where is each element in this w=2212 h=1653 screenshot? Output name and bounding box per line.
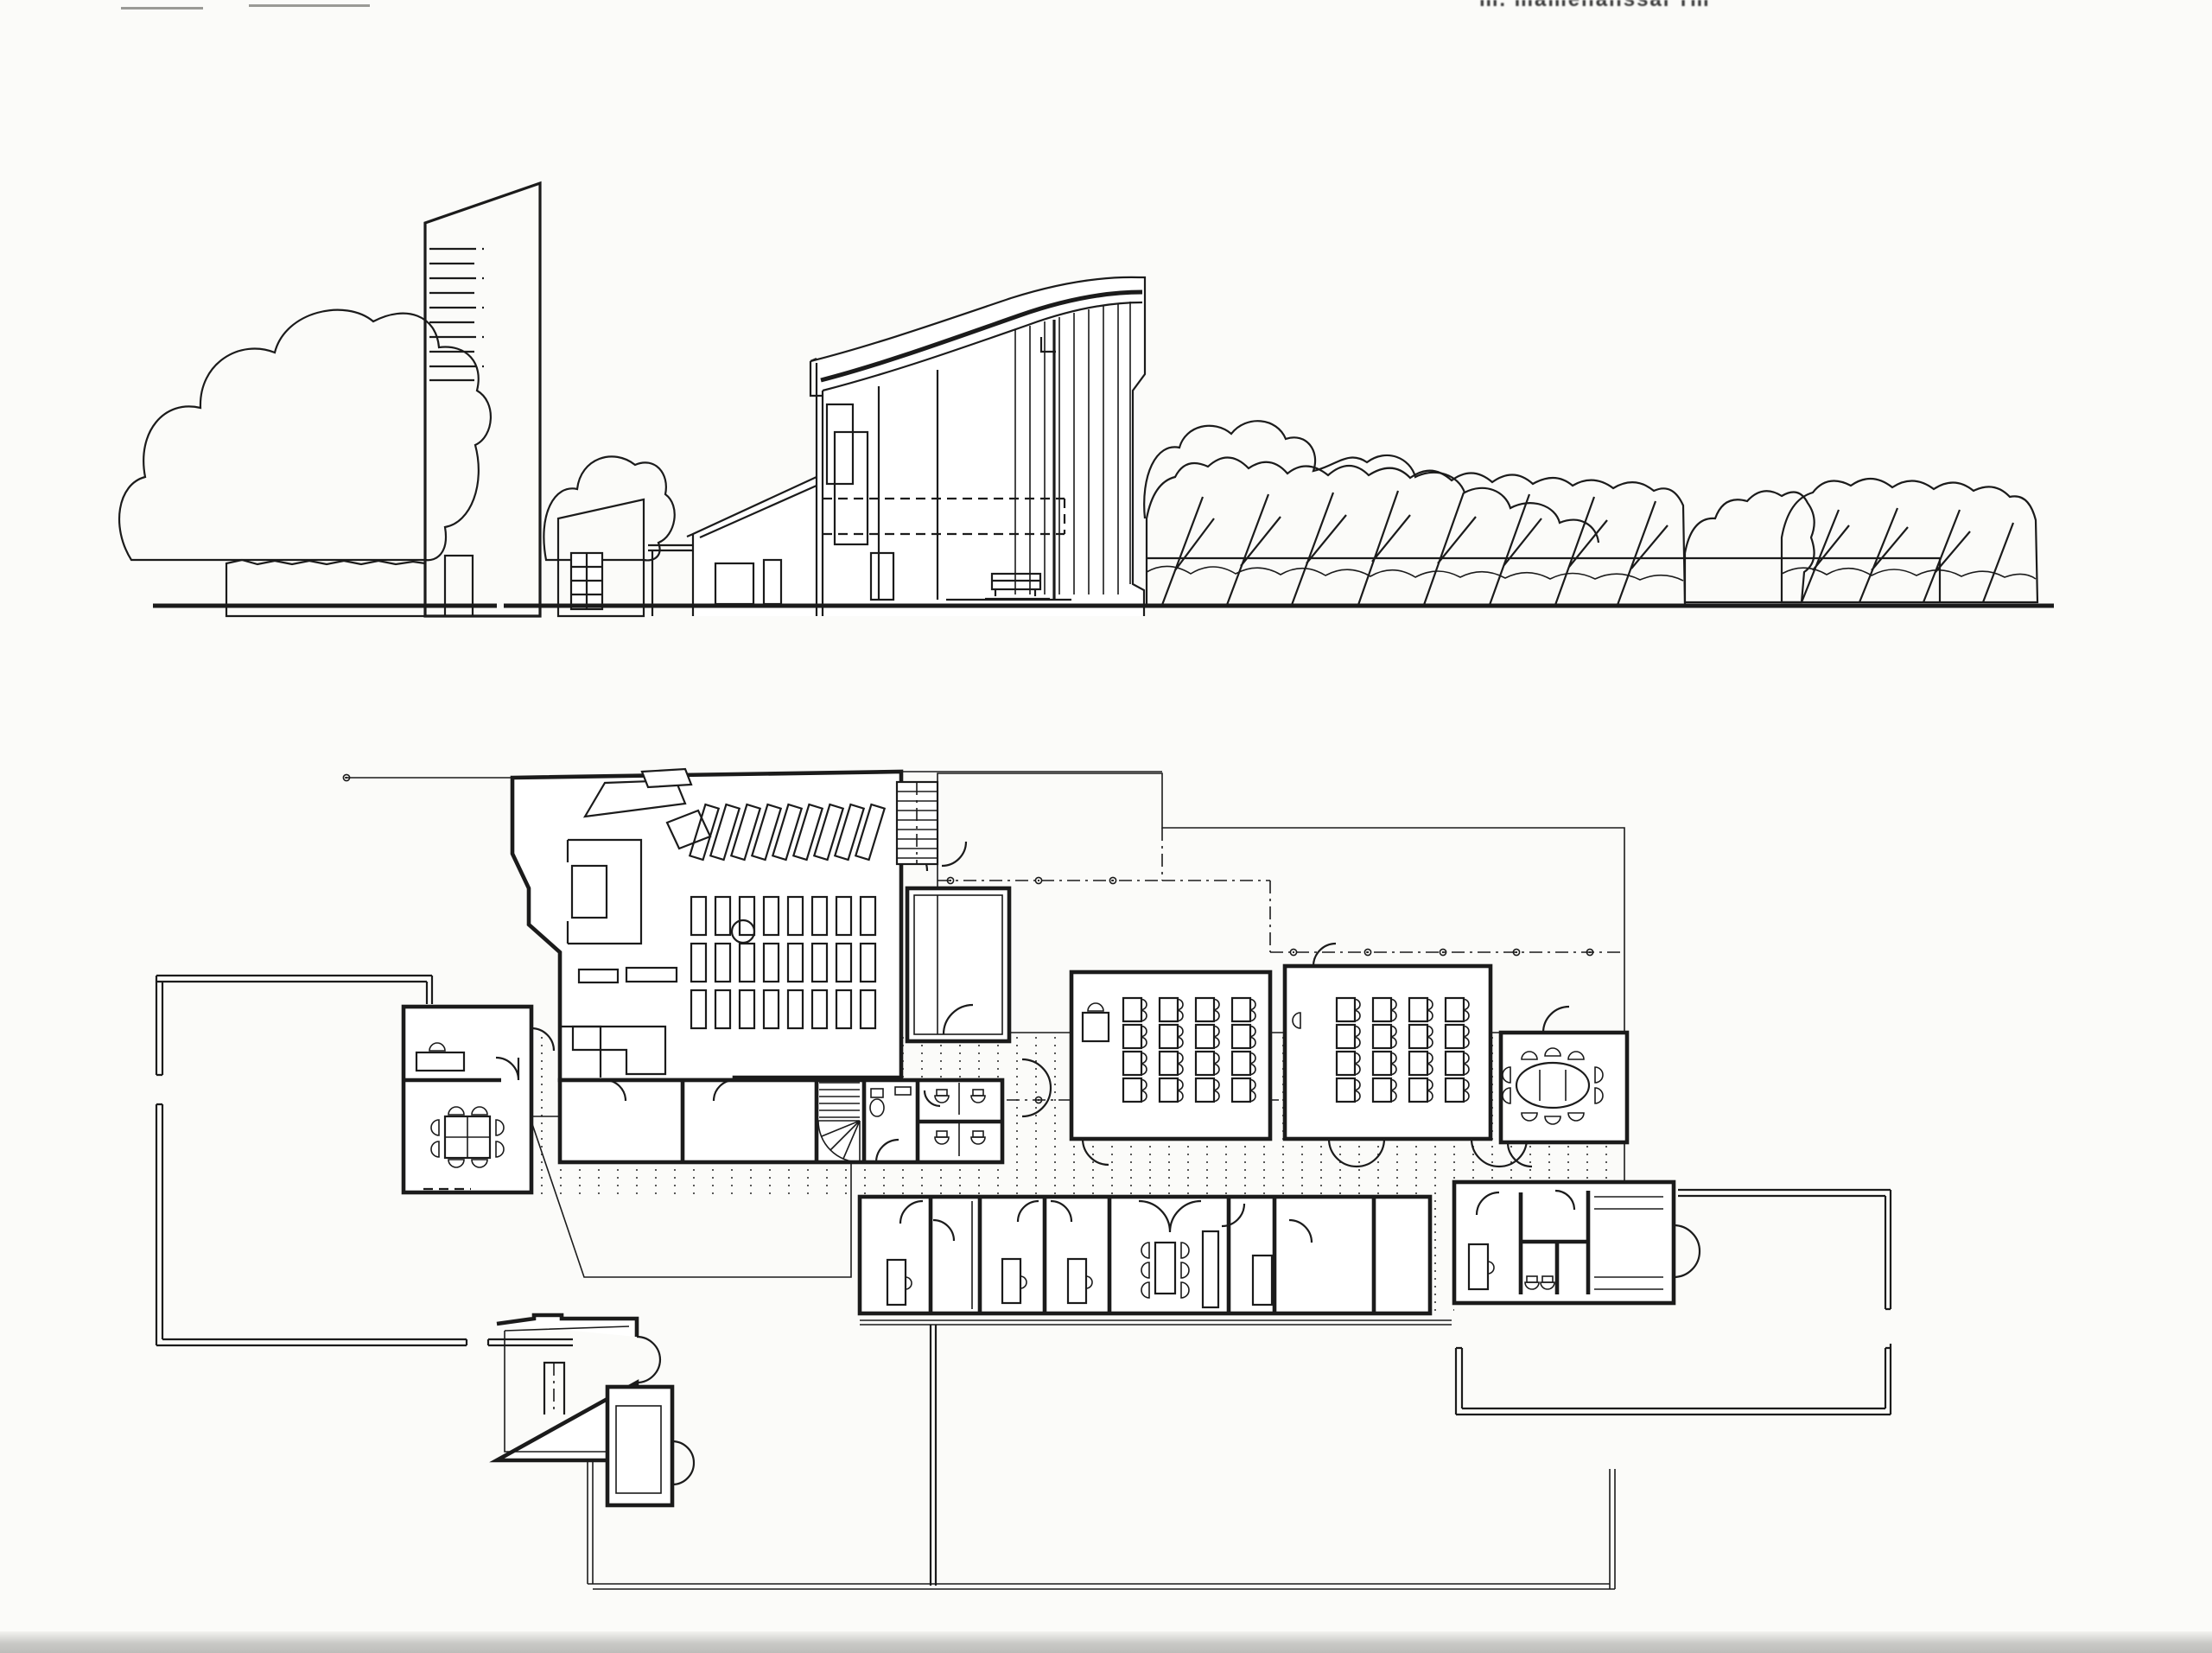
plan-conference-room — [1501, 1007, 1627, 1167]
plan-office-meeting-block — [404, 1007, 554, 1192]
plan-right-building — [1454, 1182, 1891, 1415]
chapel-hall — [810, 277, 1145, 616]
outbuilding-annex-apse — [607, 1387, 694, 1505]
plan-office-band — [860, 1197, 1452, 1586]
elevation-chapel — [687, 277, 1599, 616]
annex-window-grid — [571, 553, 602, 609]
elevation-annex — [558, 499, 644, 616]
plan-classroom-2 — [1285, 944, 1527, 1167]
chapel-west-wing — [687, 477, 817, 616]
plan-sanctuary — [512, 769, 927, 1080]
floor-plan-view — [156, 769, 1891, 1589]
plan-wc-cluster — [560, 1080, 1002, 1162]
tower-louvers — [429, 249, 489, 380]
walkway-walls — [588, 1460, 1615, 1589]
scan-edge-artifact — [0, 1631, 2212, 1653]
drawing-canvas — [0, 0, 2212, 1653]
outbuilding-skylight — [544, 1363, 564, 1415]
plan-classroom-1 — [1071, 972, 1270, 1165]
scanned-drawing-page: m. mamenanssar rm ramamnar... — [0, 0, 2212, 1653]
elevation-trees-left — [119, 310, 675, 561]
elevation-view — [119, 183, 2054, 616]
elevation-tree-rows — [1147, 457, 2037, 605]
plan-outbuilding — [497, 1315, 1615, 1589]
plan-main-stair — [897, 782, 966, 866]
